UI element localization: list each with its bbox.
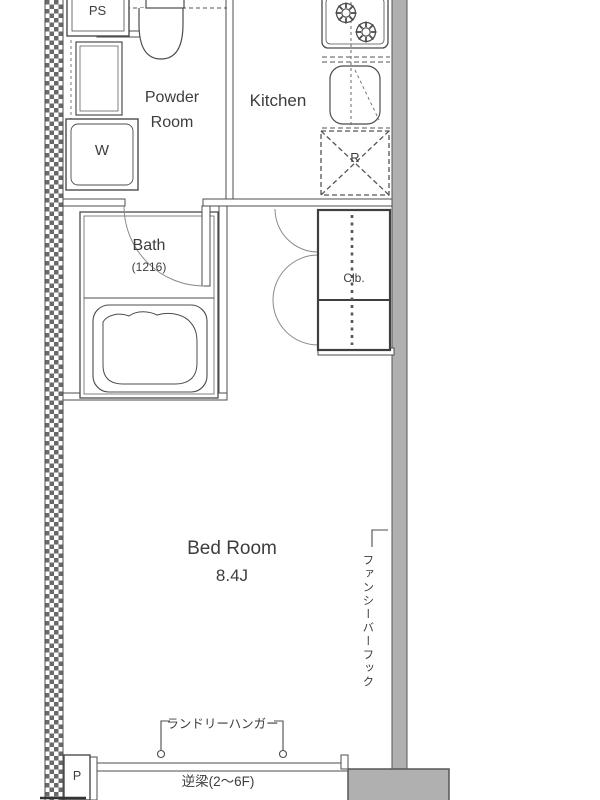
bath-size-label: (1216) — [80, 260, 218, 275]
bath-label: Bath — [80, 236, 218, 256]
stove-burner-icon — [356, 22, 377, 43]
laundry-hanger-label: ランドリーハンガー — [145, 717, 300, 733]
closet-door-swing — [273, 255, 318, 345]
common-wall-hatched — [45, 0, 63, 800]
refrigerator-label: R — [321, 150, 389, 166]
reverse-beam-label: 逆梁(2〜6F) — [148, 774, 288, 791]
stove — [322, 0, 388, 48]
bedroom-label: Bed Room — [102, 537, 362, 561]
toilet-bowl — [139, 8, 183, 59]
structural-column — [348, 769, 449, 800]
fancy-bar-hook-label: ファンシーバーフック — [360, 546, 374, 696]
powder-room-label-line2: Room — [108, 111, 236, 136]
kitchen-sink — [330, 66, 380, 124]
bedroom-size-label: 8.4J — [102, 565, 362, 586]
right-exterior-wall — [392, 0, 407, 770]
closet-label: Clb. — [318, 271, 390, 286]
stove-burner-icon — [336, 3, 357, 24]
powder-room-label-line1: Powder — [108, 86, 236, 111]
washer-label: W — [66, 142, 138, 161]
toilet-tank — [146, 0, 184, 8]
fancy-bar-bracket — [372, 530, 388, 547]
floorplan-graphic — [0, 0, 600, 800]
powder-room-label: Powder Room — [108, 86, 236, 136]
ps-label: PS — [67, 3, 128, 19]
floor-plan: PS Powder Room Kitchen W Bath (1216) R C… — [0, 0, 600, 800]
entry-door-swing — [275, 209, 318, 252]
pillar-label: P — [64, 769, 90, 785]
kitchen-label: Kitchen — [230, 90, 326, 111]
